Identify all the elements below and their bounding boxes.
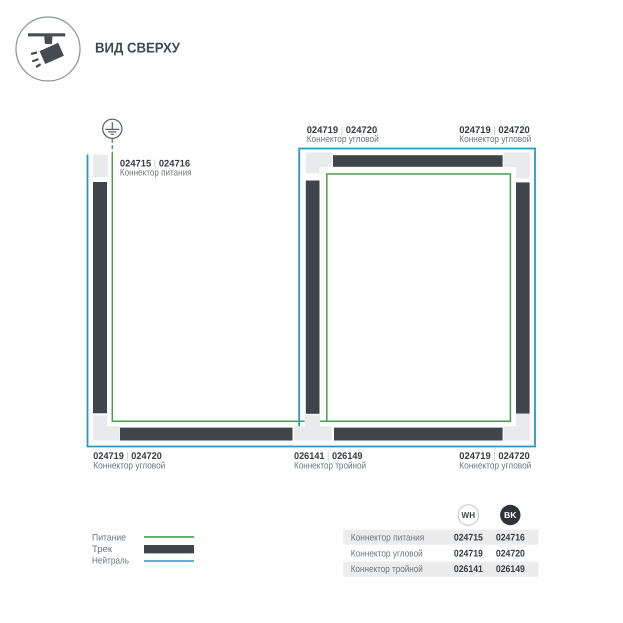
svg-text:Коннектор угловой: Коннектор угловой — [459, 134, 531, 145]
svg-text:024715: 024715 — [454, 533, 484, 544]
svg-text:ВИД СВЕРХУ: ВИД СВЕРХУ — [95, 40, 180, 56]
svg-text:WH: WH — [462, 510, 476, 520]
svg-text:Трек: Трек — [92, 544, 113, 555]
svg-text:024716: 024716 — [496, 533, 525, 544]
svg-text:Коннектор тройной: Коннектор тройной — [294, 461, 366, 472]
svg-text:026149: 026149 — [496, 564, 525, 575]
svg-text:Коннектор тройной: Коннектор тройной — [351, 564, 423, 575]
svg-text:024719: 024719 — [454, 548, 483, 559]
svg-text:026141: 026141 — [454, 564, 484, 575]
svg-text:024720: 024720 — [496, 548, 525, 559]
svg-text:Коннектор питания: Коннектор питания — [120, 168, 192, 179]
svg-text:BK: BK — [504, 510, 517, 520]
svg-text:Коннектор питания: Коннектор питания — [351, 533, 425, 544]
svg-text:Коннектор угловой: Коннектор угловой — [459, 461, 531, 472]
svg-text:Питание: Питание — [92, 532, 126, 543]
svg-text:Коннектор угловой: Коннектор угловой — [307, 134, 379, 145]
svg-text:Коннектор угловой: Коннектор угловой — [351, 548, 423, 559]
svg-text:Коннектор угловой: Коннектор угловой — [93, 461, 165, 472]
svg-text:Нейтраль: Нейтраль — [92, 556, 129, 567]
